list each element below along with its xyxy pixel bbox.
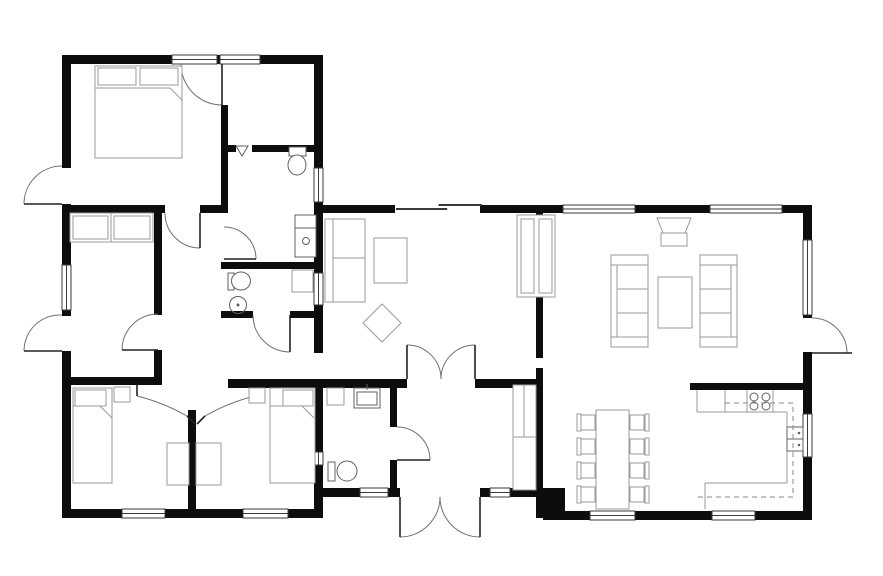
nightstand-bedroom2 bbox=[249, 388, 265, 403]
kitchen-counter bbox=[697, 390, 787, 509]
dining-chair bbox=[630, 414, 649, 431]
nightstand-bedroom3 bbox=[114, 387, 130, 402]
toilet-powder-room bbox=[228, 272, 251, 290]
door-entry-double-left bbox=[400, 497, 440, 537]
sliding-door-family-top bbox=[396, 205, 482, 209]
window-entry-bottom bbox=[490, 488, 510, 497]
table-family-room bbox=[374, 238, 407, 283]
door-living-exterior bbox=[812, 318, 852, 353]
single-bed-bedroom3 bbox=[73, 388, 112, 483]
sink-hall-bathroom bbox=[354, 384, 380, 408]
shower-marker-dressing bbox=[236, 146, 248, 156]
dining-chair bbox=[630, 438, 649, 455]
door-powder-room bbox=[253, 315, 290, 352]
window-dressing-right bbox=[314, 168, 323, 202]
coffee-table-living bbox=[658, 277, 692, 328]
dining-chair bbox=[630, 462, 649, 479]
sofa-right-living bbox=[700, 255, 737, 347]
wardrobe-family-room bbox=[517, 215, 555, 297]
floor-plan bbox=[0, 0, 883, 576]
door-master-dressing bbox=[181, 64, 222, 105]
window-living-right bbox=[803, 240, 812, 315]
door-bedroom2 bbox=[197, 388, 255, 424]
toilet-bathroom1 bbox=[288, 147, 306, 175]
door-room2 bbox=[122, 314, 158, 350]
window-hallbath-bottom bbox=[360, 488, 388, 497]
door-bedroom3 bbox=[137, 385, 195, 424]
double-bed-master bbox=[95, 66, 182, 158]
window-bedroom3-bottom bbox=[122, 509, 165, 518]
door-bathroom1 bbox=[224, 227, 256, 259]
vanity-powder-room bbox=[292, 270, 313, 292]
window-room2-left bbox=[62, 265, 71, 310]
stove-burners bbox=[750, 393, 770, 410]
entry-closet bbox=[513, 385, 536, 490]
door-exterior-left-lower bbox=[24, 315, 62, 351]
dining-chair bbox=[577, 414, 595, 431]
window-kitchen-bottom bbox=[712, 511, 755, 520]
window-bedroom2-bottom bbox=[243, 509, 288, 518]
tv-unit bbox=[657, 218, 691, 246]
furniture-layer bbox=[70, 66, 803, 509]
dining-chair bbox=[577, 438, 595, 455]
window-master-top-2 bbox=[220, 55, 260, 64]
wardrobe-room2 bbox=[70, 213, 153, 242]
floor-plan-drawing bbox=[0, 0, 883, 576]
toilet-hall-bathroom bbox=[328, 461, 357, 481]
dining-chair bbox=[577, 486, 595, 503]
window-kitchen-right bbox=[803, 414, 812, 457]
door-family-double-right bbox=[441, 345, 475, 379]
door-master-hallway bbox=[165, 213, 200, 248]
window-living-top-1 bbox=[563, 205, 635, 213]
rug-family-room bbox=[363, 304, 401, 342]
dining-table bbox=[596, 410, 629, 509]
door-family-double-left bbox=[407, 345, 441, 379]
door-hall-bathroom bbox=[397, 427, 430, 460]
door-entry-double-right bbox=[440, 497, 480, 537]
dining-chair bbox=[630, 486, 649, 503]
window-powder-right bbox=[314, 273, 323, 305]
window-living-top-2 bbox=[710, 205, 782, 213]
desk-bedroom2 bbox=[196, 443, 221, 485]
desk-bedroom3 bbox=[167, 443, 189, 485]
dining-chair bbox=[577, 462, 595, 479]
sink-powder-room bbox=[230, 297, 247, 314]
single-bed-bedroom2 bbox=[270, 388, 315, 483]
window-dining-bottom bbox=[590, 511, 635, 520]
cabinet-hall-bathroom bbox=[327, 388, 344, 405]
window-master-top-1 bbox=[172, 55, 217, 64]
kitchen-sink bbox=[787, 427, 803, 451]
couch-family-room bbox=[325, 219, 365, 302]
vanity-bathroom1 bbox=[295, 215, 316, 257]
sofa-left-living bbox=[611, 255, 648, 347]
door-exterior-left-upper bbox=[24, 166, 62, 204]
